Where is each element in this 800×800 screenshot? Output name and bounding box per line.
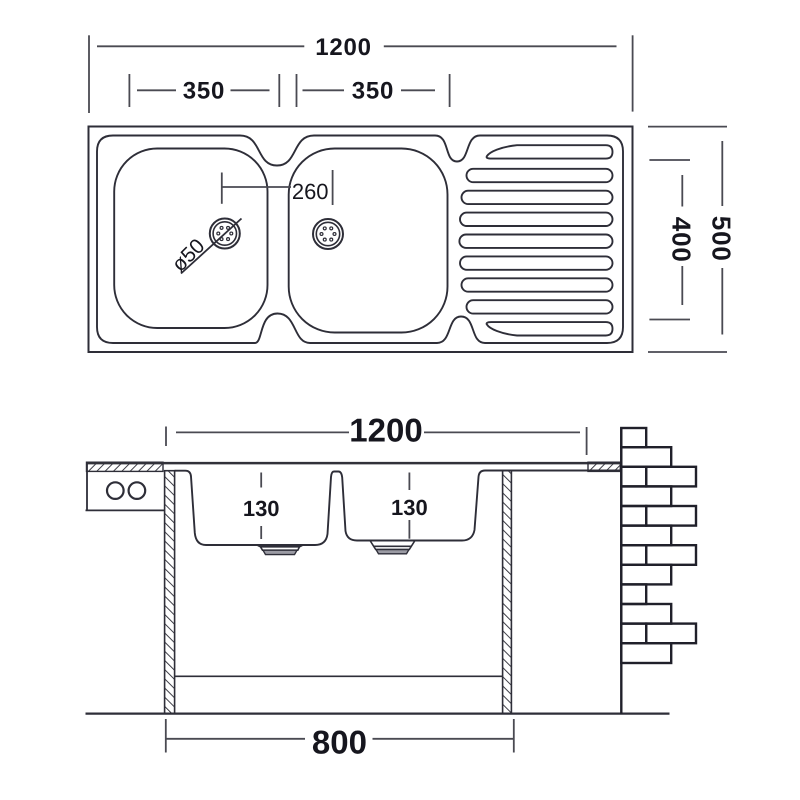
svg-text:1200: 1200 bbox=[349, 412, 422, 449]
svg-text:350: 350 bbox=[352, 78, 394, 105]
svg-text:350: 350 bbox=[183, 78, 225, 105]
svg-text:1200: 1200 bbox=[315, 34, 372, 61]
svg-text:ø50: ø50 bbox=[168, 235, 210, 277]
svg-text:500: 500 bbox=[706, 216, 736, 262]
svg-text:800: 800 bbox=[312, 723, 367, 760]
svg-text:260: 260 bbox=[292, 179, 329, 204]
svg-text:130: 130 bbox=[243, 496, 280, 521]
svg-text:400: 400 bbox=[666, 217, 696, 263]
svg-text:130: 130 bbox=[391, 495, 428, 520]
